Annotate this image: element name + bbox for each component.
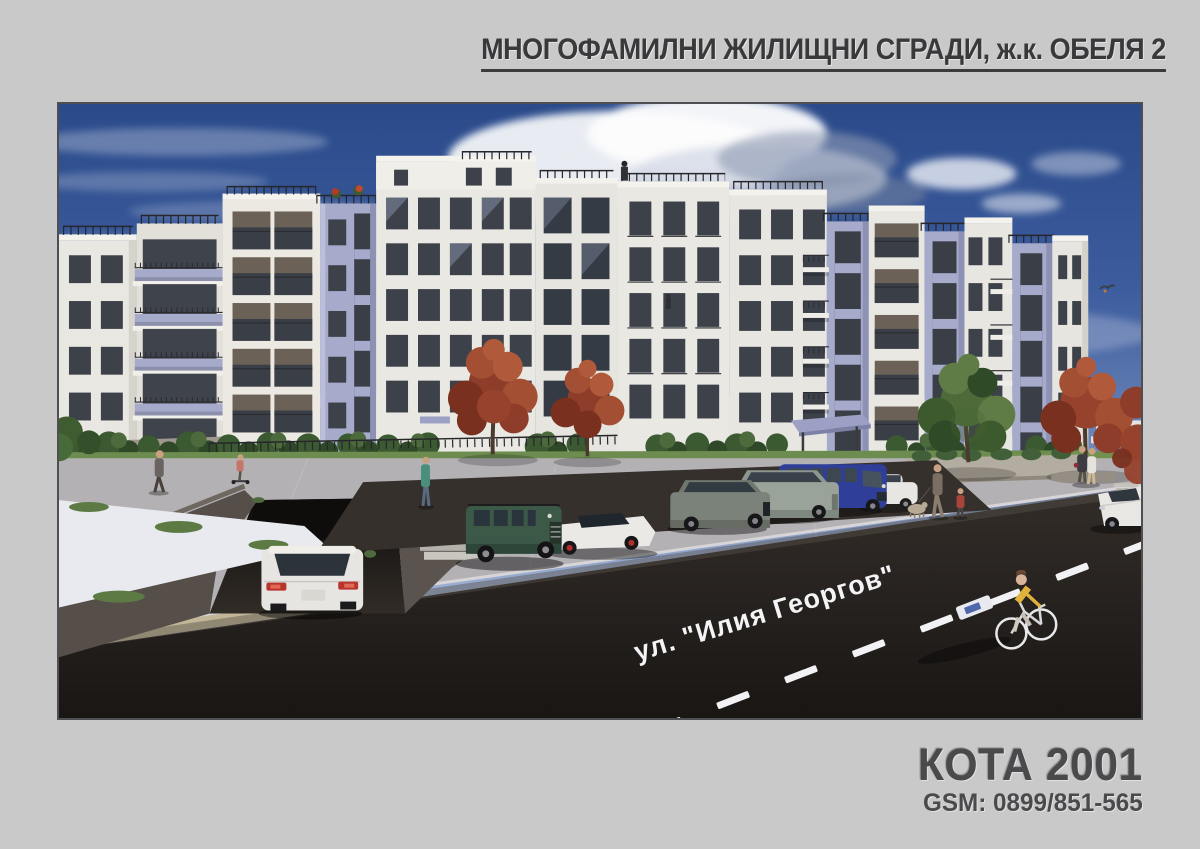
presentation-board: МНОГОФАМИЛНИ ЖИЛИЩНИ СГРАДИ, ж.к. ОБЕЛЯ … [0,0,1200,849]
page-title: МНОГОФАМИЛНИ ЖИЛИЩНИ СГРАДИ, ж.к. ОБЕЛЯ … [405,33,1166,72]
page-title-text: МНОГОФАМИЛНИ ЖИЛИЩНИ СГРАДИ, ж.к. ОБЕЛЯ … [481,33,1166,72]
company-phone: GSM: 0899/851-565 [913,789,1143,818]
company-name: КОТА 2001 [918,742,1143,788]
car-grey-hatchback [667,480,770,535]
footer-block: КОТА 2001 GSM: 0899/851-565 [906,742,1143,818]
balcony-person [666,294,671,309]
render-frame: ул. "Илия Георгов" [57,102,1143,720]
car-white-on-ramp [258,546,363,620]
render-scene: ул. "Илия Георгов" [59,104,1141,718]
suv-green [456,505,564,571]
roof-terrace-person [621,161,628,181]
